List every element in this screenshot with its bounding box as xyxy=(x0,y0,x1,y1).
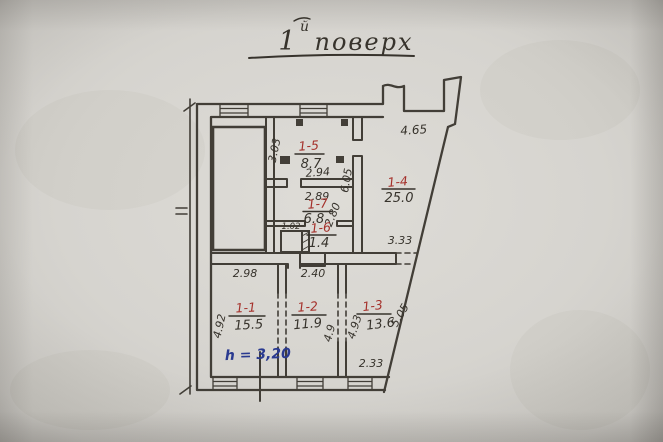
floor-plan-drawing: 1 й поверх 3.03 2.94 2.89 1.02 xyxy=(0,0,663,442)
blue-notes: h = 3,20 xyxy=(225,346,292,364)
room-1-2-number: 1-2 xyxy=(297,298,318,314)
room-1-5-number: 1-5 xyxy=(298,137,319,153)
dim-room3-bottom: 2.33 xyxy=(359,357,384,370)
scanned-floor-plan-photo: 1 й поверх 3.03 2.94 2.89 1.02 xyxy=(0,0,663,442)
room-1-1-area: 15.5 xyxy=(234,317,264,333)
room-1-4-area: 25.0 xyxy=(385,191,414,206)
dim-room4-top: 4.65 xyxy=(400,122,428,138)
dim-room2-top: 2.40 xyxy=(301,267,326,280)
room-1-7-number: 1-7 xyxy=(307,195,328,211)
room-1-3-number: 1-3 xyxy=(362,297,384,314)
dim-room1-top: 2.98 xyxy=(233,267,258,280)
title-floor-suffix: й xyxy=(300,19,309,35)
room-1-6-area: 1.4 xyxy=(309,236,330,251)
room-1-5-area: 8.7 xyxy=(301,157,322,172)
room-1-2-area: 11.9 xyxy=(293,316,323,333)
title-floor-word: поверх xyxy=(315,28,414,56)
dim-closet-width: 1.02 xyxy=(282,222,301,232)
dim-room4-bottom: 3.33 xyxy=(388,234,413,247)
room-1-6-number: 1-6 xyxy=(310,219,331,235)
room-1-4-number: 1-4 xyxy=(387,173,409,190)
title-floor-number: 1 xyxy=(278,26,295,57)
ceiling-height-note: h = 3,20 xyxy=(225,346,292,364)
room-1-1-number: 1-1 xyxy=(235,299,256,315)
